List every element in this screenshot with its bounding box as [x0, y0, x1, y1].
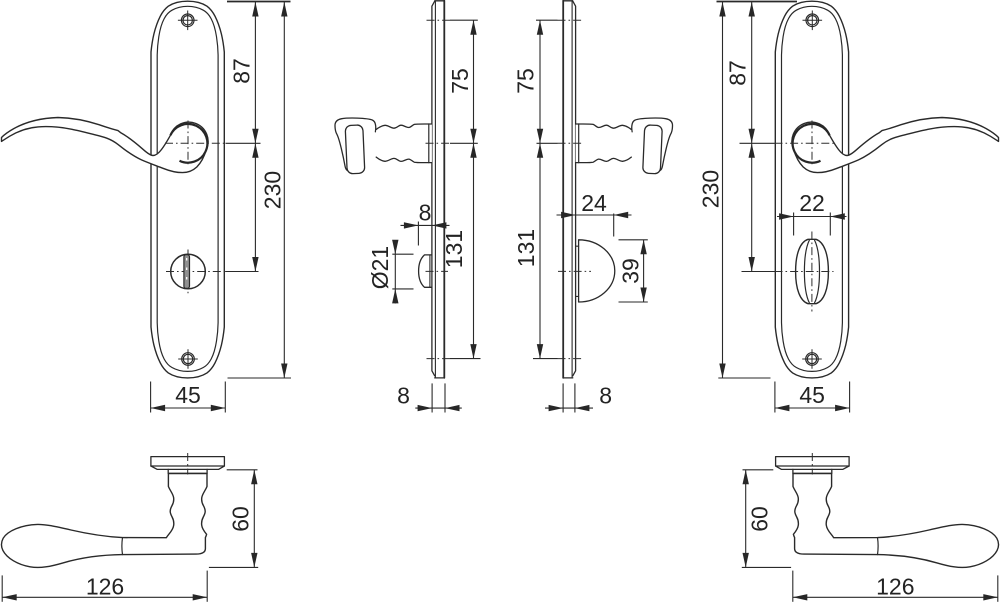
svg-text:230: 230 [259, 171, 285, 209]
svg-text:8: 8 [397, 382, 410, 408]
svg-text:126: 126 [86, 574, 124, 600]
svg-text:131: 131 [513, 229, 539, 267]
svg-text:22: 22 [799, 190, 825, 216]
svg-text:8: 8 [599, 382, 612, 408]
svg-text:45: 45 [175, 382, 201, 408]
svg-text:24: 24 [581, 190, 607, 216]
svg-text:126: 126 [876, 574, 914, 600]
svg-text:87: 87 [725, 60, 751, 86]
svg-text:87: 87 [229, 58, 255, 84]
svg-text:39: 39 [617, 258, 643, 284]
svg-text:75: 75 [447, 68, 473, 94]
svg-text:131: 131 [441, 230, 467, 268]
svg-text:60: 60 [228, 506, 254, 532]
svg-text:45: 45 [799, 382, 825, 408]
svg-text:Ø21: Ø21 [367, 246, 393, 289]
svg-text:60: 60 [746, 506, 772, 532]
svg-text:230: 230 [697, 170, 723, 208]
svg-text:75: 75 [513, 68, 539, 94]
svg-text:8: 8 [419, 200, 432, 226]
